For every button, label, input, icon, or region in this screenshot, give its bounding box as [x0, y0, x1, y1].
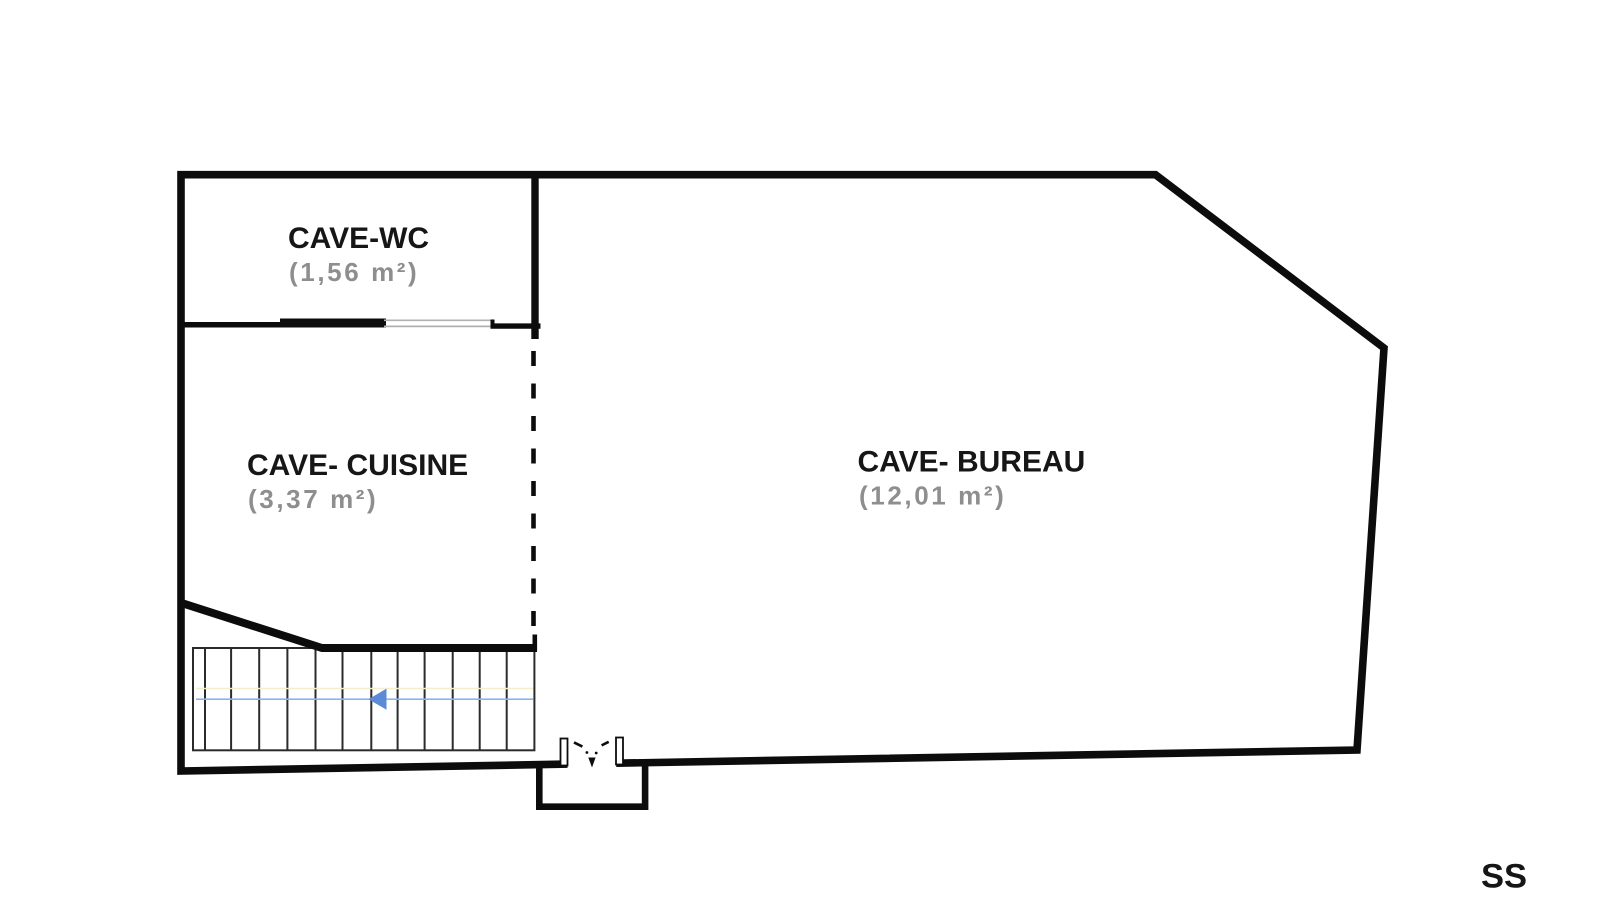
svg-text:CAVE- CUISINE: CAVE- CUISINE	[247, 449, 468, 482]
svg-text:(12,01 m²): (12,01 m²)	[859, 481, 1006, 511]
svg-text:(1,56 m²): (1,56 m²)	[289, 257, 419, 287]
svg-text:SS: SS	[1481, 858, 1527, 896]
svg-text:(3,37 m²): (3,37 m²)	[248, 484, 378, 514]
svg-text:CAVE- BUREAU: CAVE- BUREAU	[858, 446, 1086, 479]
svg-text:CAVE-WC: CAVE-WC	[288, 222, 429, 255]
